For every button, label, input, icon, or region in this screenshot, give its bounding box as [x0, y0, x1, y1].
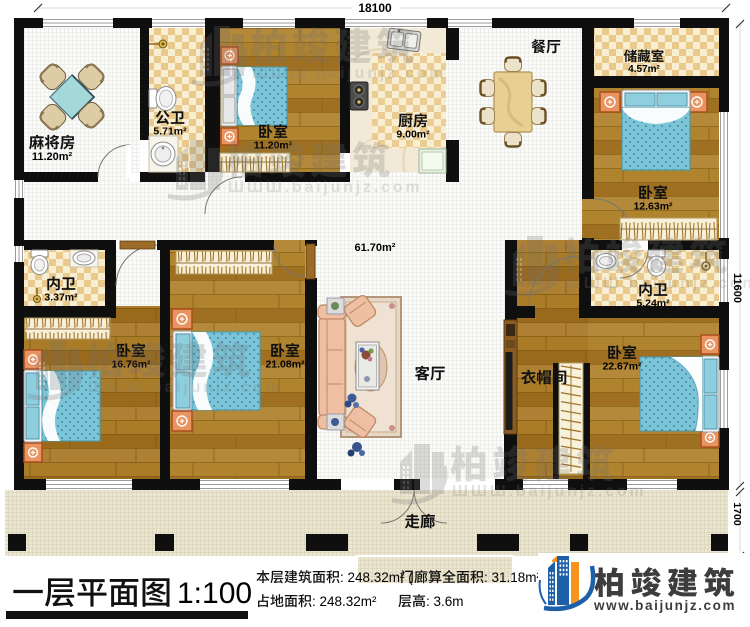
svg-text:18100: 18100: [358, 1, 392, 15]
svg-text:21.08m²: 21.08m²: [265, 359, 305, 371]
svg-text:4.57m²: 4.57m²: [628, 64, 660, 75]
svg-text:ШШШ.baijunjz.com: ШШШ.baijunjz.com: [252, 65, 446, 82]
svg-text:1700: 1700: [731, 502, 743, 526]
svg-text:11.20m²: 11.20m²: [32, 151, 73, 163]
svg-text:ШШШ.baijunjz.com: ШШШ.baijunjz.com: [565, 275, 750, 292]
svg-text:www.baijunjz.com: www.baijunjz.com: [593, 598, 736, 613]
svg-text:22.67m²: 22.67m²: [602, 361, 642, 373]
svg-text:61.70m²: 61.70m²: [355, 242, 396, 254]
svg-text:: 248.32m²: : 248.32m²: [312, 594, 377, 609]
svg-text:5.24m²: 5.24m²: [636, 298, 670, 310]
svg-text:5.71m²: 5.71m²: [153, 126, 187, 138]
svg-text:11600: 11600: [731, 273, 743, 303]
svg-text:: 31.18m²: : 31.18m²: [484, 570, 542, 585]
svg-text:: 3.6m: : 3.6m: [426, 594, 464, 609]
svg-text:ШШШ.baijunjz.com: ШШШ.baijunjz.com: [452, 483, 646, 500]
svg-text:12.63m²: 12.63m²: [633, 201, 673, 213]
svg-text:1:100: 1:100: [177, 577, 252, 610]
svg-text:9.00m²: 9.00m²: [396, 129, 430, 141]
svg-text:ШШШ.baijunjz.com: ШШШ.baijunjz.com: [228, 179, 422, 196]
svg-text:ШШШ.baijunjz.com: ШШШ.baijunjz.com: [88, 379, 282, 396]
svg-text:3.37m²: 3.37m²: [44, 292, 78, 304]
